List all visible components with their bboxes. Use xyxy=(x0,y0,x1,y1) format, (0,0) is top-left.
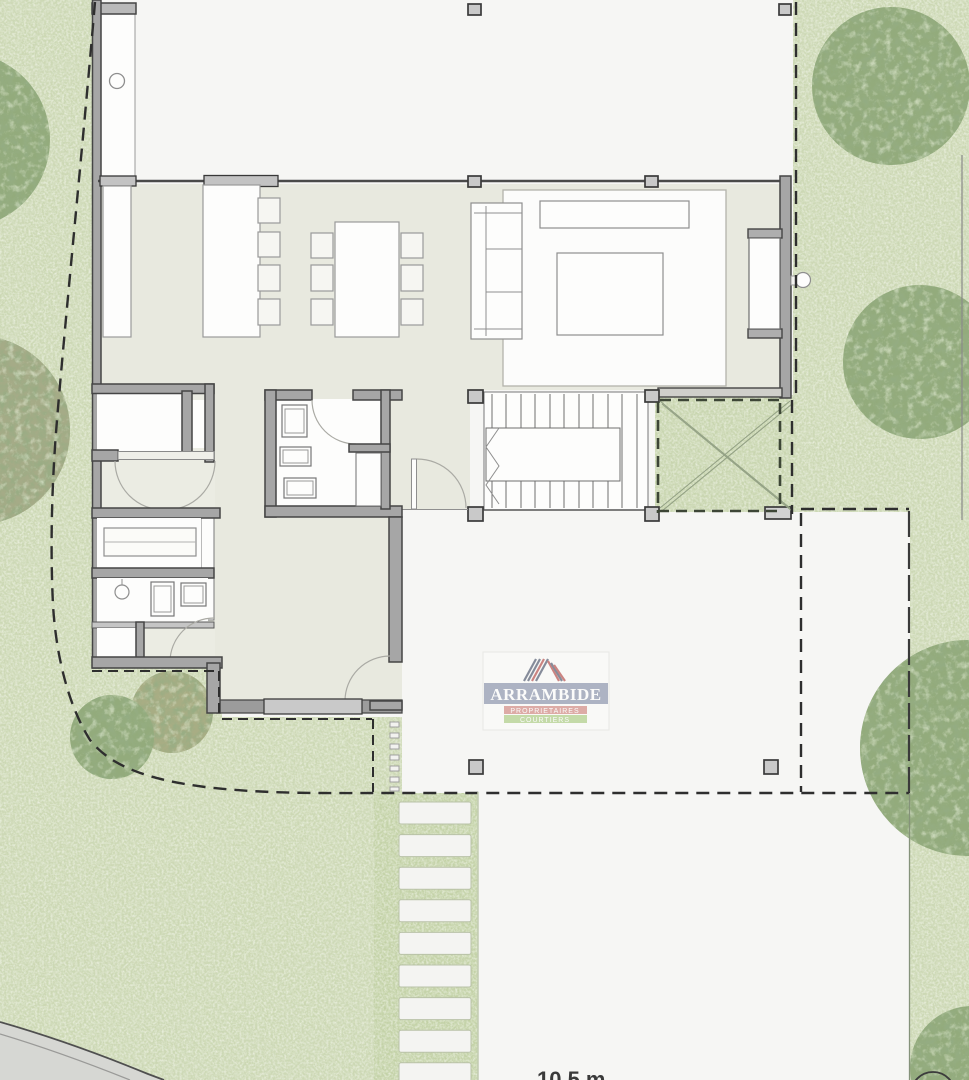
svg-text:PROPRIETAIRES: PROPRIETAIRES xyxy=(510,708,579,715)
svg-text:ARRAMBIDE: ARRAMBIDE xyxy=(490,685,601,704)
svg-text:10.5 m: 10.5 m xyxy=(537,1067,606,1080)
svg-text:COURTIERS: COURTIERS xyxy=(520,717,570,724)
